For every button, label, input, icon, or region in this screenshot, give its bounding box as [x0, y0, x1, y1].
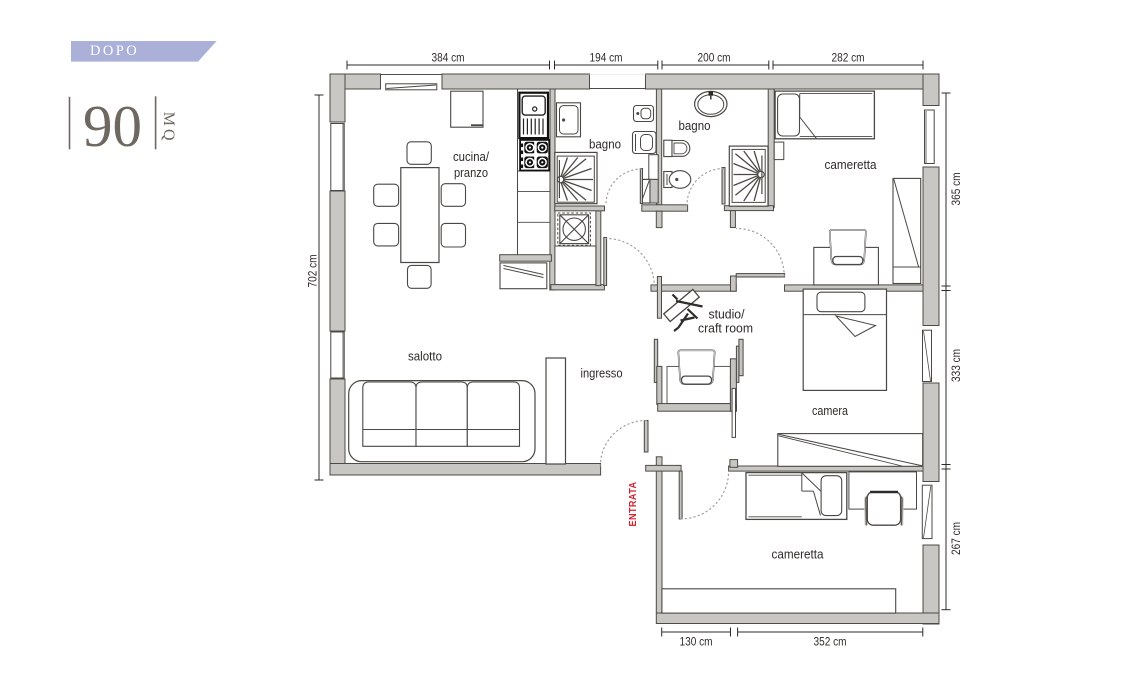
- svg-text:ENTRATA: ENTRATA: [627, 482, 639, 527]
- svg-text:pranzo: pranzo: [454, 165, 488, 180]
- svg-text:camera: camera: [812, 403, 849, 418]
- svg-text:702 cm: 702 cm: [308, 255, 320, 288]
- svg-text:282 cm: 282 cm: [832, 53, 865, 65]
- svg-text:194 cm: 194 cm: [590, 53, 623, 65]
- svg-text:267 cm: 267 cm: [951, 522, 963, 555]
- svg-text:salotto: salotto: [408, 349, 442, 364]
- svg-text:352 cm: 352 cm: [814, 637, 847, 649]
- svg-text:200 cm: 200 cm: [698, 53, 731, 65]
- svg-text:cameretta: cameretta: [772, 547, 825, 562]
- svg-text:ingresso: ingresso: [581, 366, 623, 381]
- svg-text:333 cm: 333 cm: [951, 349, 963, 382]
- svg-text:130 cm: 130 cm: [680, 637, 713, 649]
- svg-text:bagno: bagno: [589, 137, 621, 152]
- svg-text:365 cm: 365 cm: [951, 173, 963, 206]
- svg-text:cucina/: cucina/: [453, 149, 489, 164]
- svg-text:384 cm: 384 cm: [432, 53, 465, 65]
- svg-text:craft room: craft room: [698, 321, 753, 336]
- svg-text:bagno: bagno: [679, 118, 711, 133]
- svg-text:cameretta: cameretta: [825, 157, 878, 172]
- svg-text:DOPO: DOPO: [90, 43, 139, 59]
- svg-text:studio/: studio/: [709, 307, 745, 322]
- svg-text:90: 90: [83, 93, 142, 159]
- svg-text:MQ: MQ: [160, 112, 177, 144]
